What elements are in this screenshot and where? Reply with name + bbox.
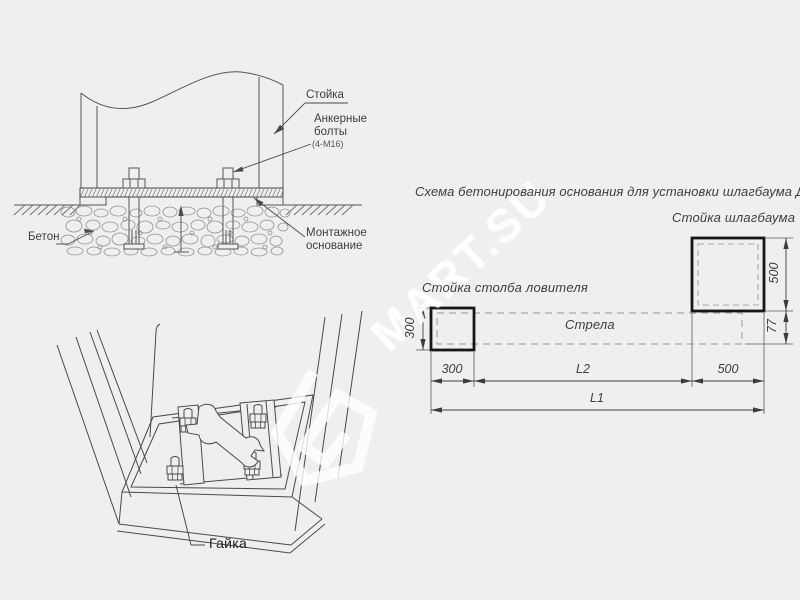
catcher-post-label: Стойка столба ловителя bbox=[422, 281, 588, 294]
nut-label: Гайка bbox=[209, 537, 247, 550]
dim-post-height-300: 300 bbox=[403, 306, 417, 350]
dim-post-width-300: 300 bbox=[430, 362, 474, 376]
drawing-sheet: MART.SU Стойка Анкерные болты (4-М16) Бе… bbox=[0, 0, 800, 600]
dim-boom-offset-77: 77 bbox=[765, 304, 779, 348]
dim-base-width-500: 500 bbox=[706, 362, 750, 376]
anchor-bolts-label: Анкерные болты bbox=[314, 113, 378, 139]
boom-label: Стрела bbox=[565, 318, 615, 331]
dim-l1: L1 bbox=[575, 391, 619, 405]
dim-l2: L2 bbox=[561, 362, 605, 376]
anchor-bolt-left bbox=[123, 168, 145, 249]
barrier-post-label: Стойка шлагбаума bbox=[672, 211, 795, 224]
post-label: Стойка bbox=[306, 89, 344, 102]
concrete-label: Бетон bbox=[28, 231, 59, 244]
dim-base-height-500: 500 bbox=[767, 251, 781, 295]
concrete-rubble-pattern bbox=[61, 206, 290, 256]
mounting-base-label: Монтажное основание bbox=[306, 227, 386, 253]
plan-title: Схема бетонирования основания для устано… bbox=[415, 184, 800, 199]
anchor-bolts-spec: (4-М16) bbox=[312, 138, 344, 151]
barrier-post-square bbox=[692, 238, 764, 311]
